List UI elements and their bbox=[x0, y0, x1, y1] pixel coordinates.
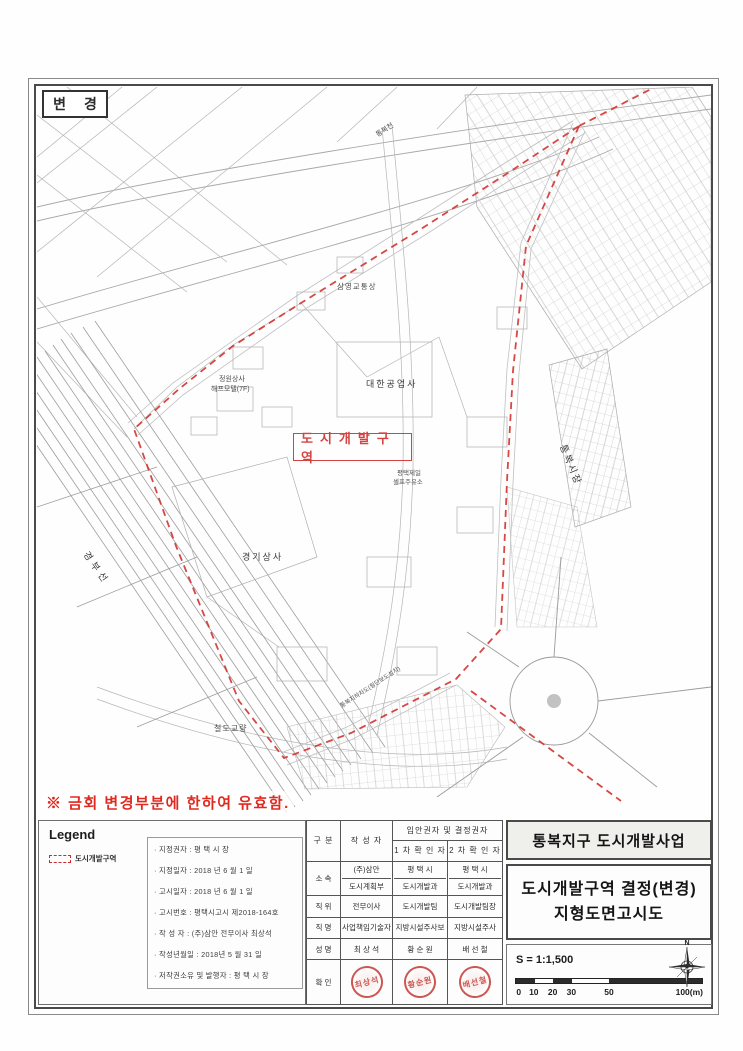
info-line: · 지정권자 : 평 택 시 장 bbox=[154, 845, 296, 855]
cell-stamp-check1: 황순원 bbox=[393, 960, 448, 1005]
col-header-check1: 1 차 확 인 자 bbox=[393, 841, 448, 861]
seal-stamp-icon: 최상석 bbox=[347, 963, 386, 1002]
scale-ratio: S = 1:1,500 bbox=[516, 954, 573, 966]
approval-table: 구 분 작 성 자 입안권자 및 결정권자 1 차 확 인 자 2 차 확 인 … bbox=[306, 820, 503, 1005]
cell-name-check2: 배 선 철 bbox=[448, 938, 503, 959]
info-line: · 작 성 자 : (주)삼안 전무이사 최상석 bbox=[154, 929, 296, 939]
cell-name-author: 최 상 석 bbox=[341, 938, 393, 959]
parcel-rects bbox=[172, 257, 527, 681]
cell-sosok-author: (주)삼안 도시계획부 bbox=[341, 861, 393, 896]
document-title-line1: 도시개발구역 결정(변경) bbox=[521, 877, 696, 902]
cell-sosok-check1: 평 택 시 도시개발과 bbox=[393, 861, 448, 896]
zone-boundary-swatch-icon bbox=[49, 855, 71, 863]
cell-sosok-check2: 평 택 시 도시개발과 bbox=[448, 861, 503, 896]
scale-box: S = 1:1,500 0 10 20 30 50 100(m) N bbox=[506, 944, 712, 1005]
info-line: · 고시번호 : 평택시고시 제2018-164호 bbox=[154, 908, 296, 918]
row-label-jikmyeong: 직 명 bbox=[307, 917, 341, 938]
document-title-line2: 지형도면고시도 bbox=[554, 902, 664, 927]
row-label-hwakin: 확 인 bbox=[307, 960, 341, 1005]
map-label-motel: 해프모텔(7F) bbox=[211, 384, 250, 394]
project-title: 통복지구 도시개발사업 bbox=[532, 830, 685, 851]
scale-tick: 20 bbox=[548, 987, 557, 997]
scale-tick: 10 bbox=[529, 987, 538, 997]
map-label-daehan: 대한공업사 bbox=[366, 377, 417, 390]
scanned-map-document: 변 경 통복천 삼영교통상 대한공업사 정원상사 해프모텔(7F) 경기상사 평… bbox=[0, 0, 743, 1051]
seal-stamp-icon: 황순원 bbox=[401, 963, 440, 1002]
scale-tick: 30 bbox=[567, 987, 576, 997]
development-zone-label: 도시개발구역 bbox=[301, 428, 411, 466]
sosok-check2-dept: 도시개발과 bbox=[449, 878, 501, 895]
col-header-gubun: 구 분 bbox=[307, 821, 341, 862]
change-label-box: 변 경 bbox=[42, 90, 108, 118]
row-label-jigwi: 직 위 bbox=[307, 896, 341, 917]
sosok-author-org: (주)삼안 bbox=[342, 862, 391, 878]
designation-info-box: · 지정권자 : 평 택 시 장 · 지정일자 : 2018 년 6 월 1 일… bbox=[147, 837, 303, 989]
sosok-check1-dept: 도시개발과 bbox=[394, 878, 446, 895]
cell-jikmyeong-author: 사업책임기술자 bbox=[341, 917, 393, 938]
cell-stamp-author: 최상석 bbox=[341, 960, 393, 1005]
legend-item-label: 도시개발구역 bbox=[75, 853, 116, 864]
legend-title: Legend bbox=[49, 827, 95, 842]
cell-jigwi-author: 전무이사 bbox=[341, 896, 393, 917]
sosok-check1-org: 평 택 시 bbox=[394, 862, 446, 878]
col-header-check2: 2 차 확 인 자 bbox=[448, 841, 503, 861]
compass-n-label: N bbox=[684, 940, 689, 947]
sosok-author-dept: 도시계획부 bbox=[342, 878, 391, 895]
cell-jikmyeong-check1: 지방시설주사보 bbox=[393, 917, 448, 938]
cell-jigwi-check1: 도시개발팀 bbox=[393, 896, 448, 917]
info-line: · 지정일자 : 2018 년 6 월 1 일 bbox=[154, 866, 296, 876]
col-header-approvers: 입안권자 및 결정권자 bbox=[393, 821, 503, 841]
info-line: · 고시일자 : 2018 년 6 월 1 일 bbox=[154, 887, 296, 897]
project-title-box: 통복지구 도시개발사업 bbox=[506, 820, 712, 860]
info-line: · 작성년월일 : 2018년 5 월 31 일 bbox=[154, 950, 296, 960]
cell-jikmyeong-check2: 지방시설주사 bbox=[448, 917, 503, 938]
scale-tick: 0 bbox=[516, 987, 521, 997]
seal-stamp-icon: 배선철 bbox=[456, 963, 495, 1002]
legend-item: 도시개발구역 bbox=[49, 853, 116, 864]
validity-note: ※ 금회 변경부분에 한하여 유효함. bbox=[42, 791, 294, 814]
row-label-sosok: 소 속 bbox=[307, 861, 341, 896]
document-title-box: 도시개발구역 결정(변경) 지형도면고시도 bbox=[506, 864, 712, 940]
map-label-bridge: 철도교량 bbox=[214, 723, 247, 734]
sosok-check2-org: 평 택 시 bbox=[449, 862, 501, 878]
compass-rose-icon: N bbox=[666, 937, 708, 989]
development-zone-label-box: 도시개발구역 bbox=[293, 433, 412, 461]
info-line: · 저작권소유 및 발행자 : 평 택 시 장 bbox=[154, 971, 296, 981]
row-label-name: 성 명 bbox=[307, 938, 341, 959]
map-label-bus: 삼영교통상 bbox=[337, 281, 377, 292]
scale-tick: 50 bbox=[604, 987, 613, 997]
map-label-gas2: 셀프주유소 bbox=[393, 476, 423, 486]
cell-jigwi-check2: 도시개발팀장 bbox=[448, 896, 503, 917]
map-label-gyeonggi: 경기상사 bbox=[242, 550, 283, 563]
change-label: 변 경 bbox=[53, 94, 104, 114]
map-label-jeongwon: 정원상사 bbox=[219, 374, 245, 384]
scale-seg bbox=[553, 979, 572, 983]
road-lines bbox=[37, 87, 507, 766]
scale-seg bbox=[516, 979, 535, 983]
scale-seg bbox=[572, 979, 609, 983]
cell-name-check1: 황 순 원 bbox=[393, 938, 448, 959]
cell-stamp-check2: 배선철 bbox=[448, 960, 503, 1005]
scale-seg bbox=[535, 979, 554, 983]
legend-box: Legend 도시개발구역 · 지정권자 : 평 택 시 장 · 지정일자 : … bbox=[38, 820, 306, 1005]
col-header-author: 작 성 자 bbox=[341, 821, 393, 862]
